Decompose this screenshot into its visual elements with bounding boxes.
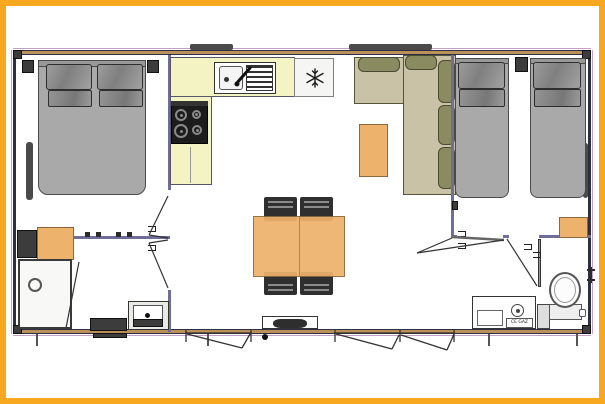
- bathroom-door-swing: [149, 243, 168, 288]
- window-opener: [447, 334, 454, 350]
- master-door-swing: [149, 235, 168, 238]
- window-opener: [336, 334, 392, 349]
- master-door-swing: [149, 196, 168, 235]
- faucet-icon: [236, 68, 250, 84]
- door-handle: [262, 334, 268, 340]
- wc-door-swing: [507, 239, 537, 286]
- floor-plan: CE GAZ: [0, 0, 605, 404]
- bathroom-door-swing: [149, 240, 168, 243]
- door-swing-overlay: [0, 0, 605, 404]
- faucet-base: [235, 82, 240, 87]
- window-opener: [392, 335, 399, 349]
- twin-door-swing: [417, 240, 504, 253]
- entrance-mat: [273, 319, 307, 328]
- window-opener: [242, 334, 250, 348]
- toilet-flush: [579, 309, 586, 317]
- shower-door: [66, 262, 79, 328]
- toilet-bowl-inner: [554, 277, 576, 303]
- window-opener: [401, 335, 447, 350]
- twin-door-leaf: [452, 237, 504, 240]
- window-opener: [187, 334, 242, 348]
